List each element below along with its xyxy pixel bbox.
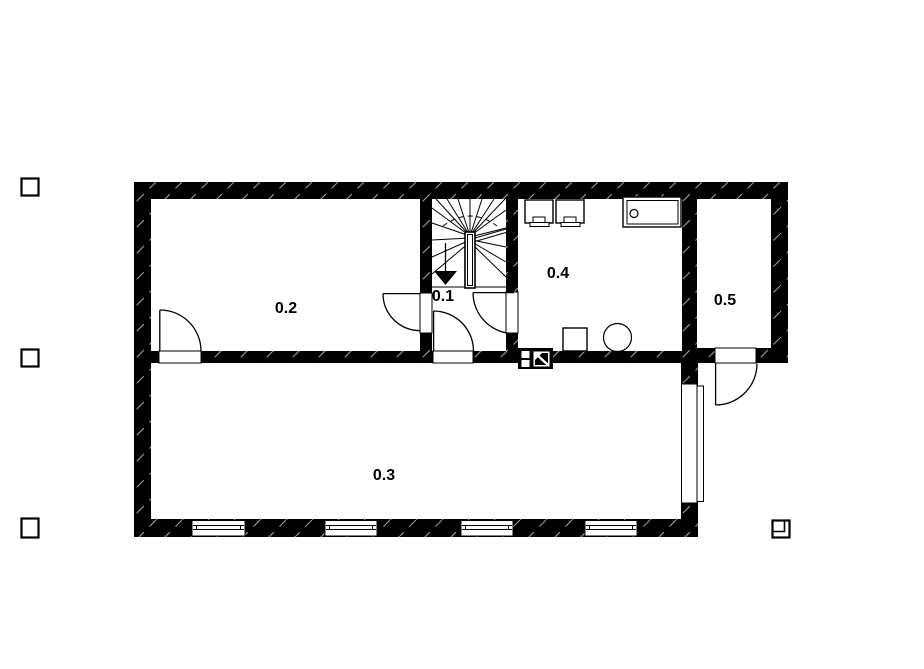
chimney-flue-icon: [518, 348, 553, 369]
exterior-wall-left: [134, 199, 151, 537]
room-0-4-label: 0.4: [547, 265, 569, 282]
door-swing-arc: [716, 364, 757, 405]
square-fixture-icon: [563, 328, 587, 351]
window-4: [585, 521, 637, 537]
wall-01-04-upper: [506, 199, 518, 292]
floor-plan-drawing: 0.1 0.2 0.3 0.4 0.5: [0, 0, 924, 669]
door-opening-01-04: [506, 292, 518, 333]
stair-handrail: [475, 229, 506, 242]
door-01-03: [434, 311, 474, 351]
registration-mark-bottom-right: [773, 521, 790, 538]
stair-direction-arrow-icon: [434, 271, 457, 285]
door-opening-02-01: [420, 293, 432, 333]
exterior-wall-top: [134, 182, 788, 199]
exterior-wall-right: [771, 199, 788, 363]
interior-wall-mid-a: [151, 351, 159, 363]
door-swing-arc: [434, 311, 474, 351]
door-02-01: [383, 294, 420, 331]
registration-mark-left-bottom: [22, 519, 39, 538]
sink-counter-icon: [623, 197, 681, 227]
wall-02-01-upper: [420, 199, 432, 293]
room-0-2-label: 0.2: [275, 300, 297, 317]
room-0-5-label: 0.5: [714, 292, 736, 309]
door-swing-arc: [160, 310, 201, 351]
window-east-sill: [697, 386, 704, 502]
staircase: [432, 199, 506, 288]
door-02-03: [160, 310, 201, 351]
washing-machine-1-icon: [525, 200, 553, 227]
interior-wall-mid-c: [473, 351, 682, 363]
interior-wall-mid-b: [201, 351, 433, 363]
window-2: [325, 521, 377, 537]
registration-mark-left-top: [22, 179, 39, 196]
doors: [160, 293, 757, 405]
stair-newel-post: [465, 232, 475, 288]
registration-mark-left-mid: [22, 350, 39, 367]
room05-south-wall-b: [756, 348, 788, 363]
door-05-exterior: [716, 364, 757, 405]
wall-02-01-lower: [420, 333, 432, 351]
wall-04-05: [682, 199, 697, 348]
door-swing-arc: [383, 294, 420, 331]
room-0-3-label: 0.3: [373, 467, 395, 484]
floor-plan-page: 0.1 0.2 0.3 0.4 0.5: [0, 0, 924, 669]
door-opening-01-03: [433, 351, 473, 363]
window-east: [682, 384, 704, 503]
round-fixture-icon: [604, 324, 632, 352]
room05-south-wall-a: [682, 348, 715, 363]
wall-01-04-lower: [506, 333, 518, 351]
room-0-1-label: 0.1: [432, 288, 454, 305]
window-east-opening: [682, 384, 698, 503]
washing-machine-2-icon: [556, 200, 584, 227]
door-opening-02-03: [159, 351, 201, 363]
window-1: [192, 521, 245, 537]
door-opening-05-exterior: [715, 348, 756, 363]
window-3: [461, 521, 513, 537]
